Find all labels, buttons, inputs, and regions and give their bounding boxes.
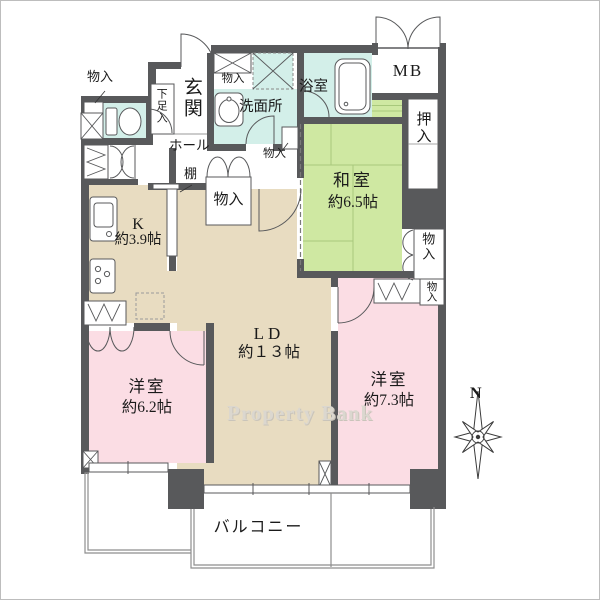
washitsu-name-label: 和室 [315, 172, 391, 191]
bedroom-east-name-label: 洋室 [357, 371, 421, 389]
stove-icon [90, 259, 115, 293]
hall-label: ホール [169, 139, 210, 154]
living-dining-size-label: 約１３帖 [221, 344, 317, 361]
closet-hall-label: 物入 [263, 148, 286, 161]
oshiire-label: 押入 [414, 111, 431, 179]
watermark: Property Bank [227, 401, 373, 426]
washitsu-closet-door-top [403, 230, 413, 255]
closet-ld-label: 物入 [206, 192, 251, 209]
shoe-box-label: 下足入 [155, 88, 167, 132]
closet-hall-box [282, 127, 298, 149]
compass-north-label: N [470, 385, 482, 403]
living-dining-name-label: LD [241, 325, 297, 344]
bedroom-west-name-label: 洋室 [115, 378, 179, 396]
balcony-pillar-left [168, 469, 204, 509]
balcony-pillar-right [410, 469, 446, 509]
ld-closet-door-left [207, 157, 228, 177]
ld-closet-door-right [228, 157, 250, 177]
genkan-label: 玄関 [180, 77, 201, 137]
meter-box-door-right [408, 17, 440, 49]
meter-box-door-left [376, 17, 408, 49]
balcony-label: バルコニー [196, 519, 321, 537]
washitsu-size-label: 約6.5帖 [305, 194, 401, 211]
bedroom-west-floor [89, 331, 206, 463]
closet-bedroom-east-label: 物入 [425, 281, 437, 306]
washroom-label: 洗面所 [239, 100, 283, 116]
washitsu-alcove [372, 100, 402, 117]
shelf-box [153, 184, 179, 189]
shelf-label: 棚 [184, 167, 197, 181]
bathtub-icon [335, 59, 370, 114]
kitchen-size-label: 約3.9帖 [100, 233, 176, 249]
closet-toilet-box [84, 102, 103, 113]
closet-toilet-label: 物入 [87, 70, 113, 84]
toilet-icon [106, 108, 141, 135]
kitchen-name-label: K [108, 216, 168, 234]
folding-closet-bedroom-east-box [374, 279, 420, 303]
closet-washitsu-label: 物入 [420, 232, 434, 278]
closet-washroom-label: 物入 [215, 73, 251, 86]
meter-box-label: MB [378, 62, 438, 81]
bathroom-label: 浴室 [299, 80, 328, 96]
bedroom-west-size-label: 約6.2帖 [101, 399, 193, 416]
floor-plan: 物入 玄関 下足入 物入 洗面所 浴室 MB 押入 ホール 棚 物入 物入 和室… [0, 0, 600, 600]
compass-icon [447, 391, 509, 479]
